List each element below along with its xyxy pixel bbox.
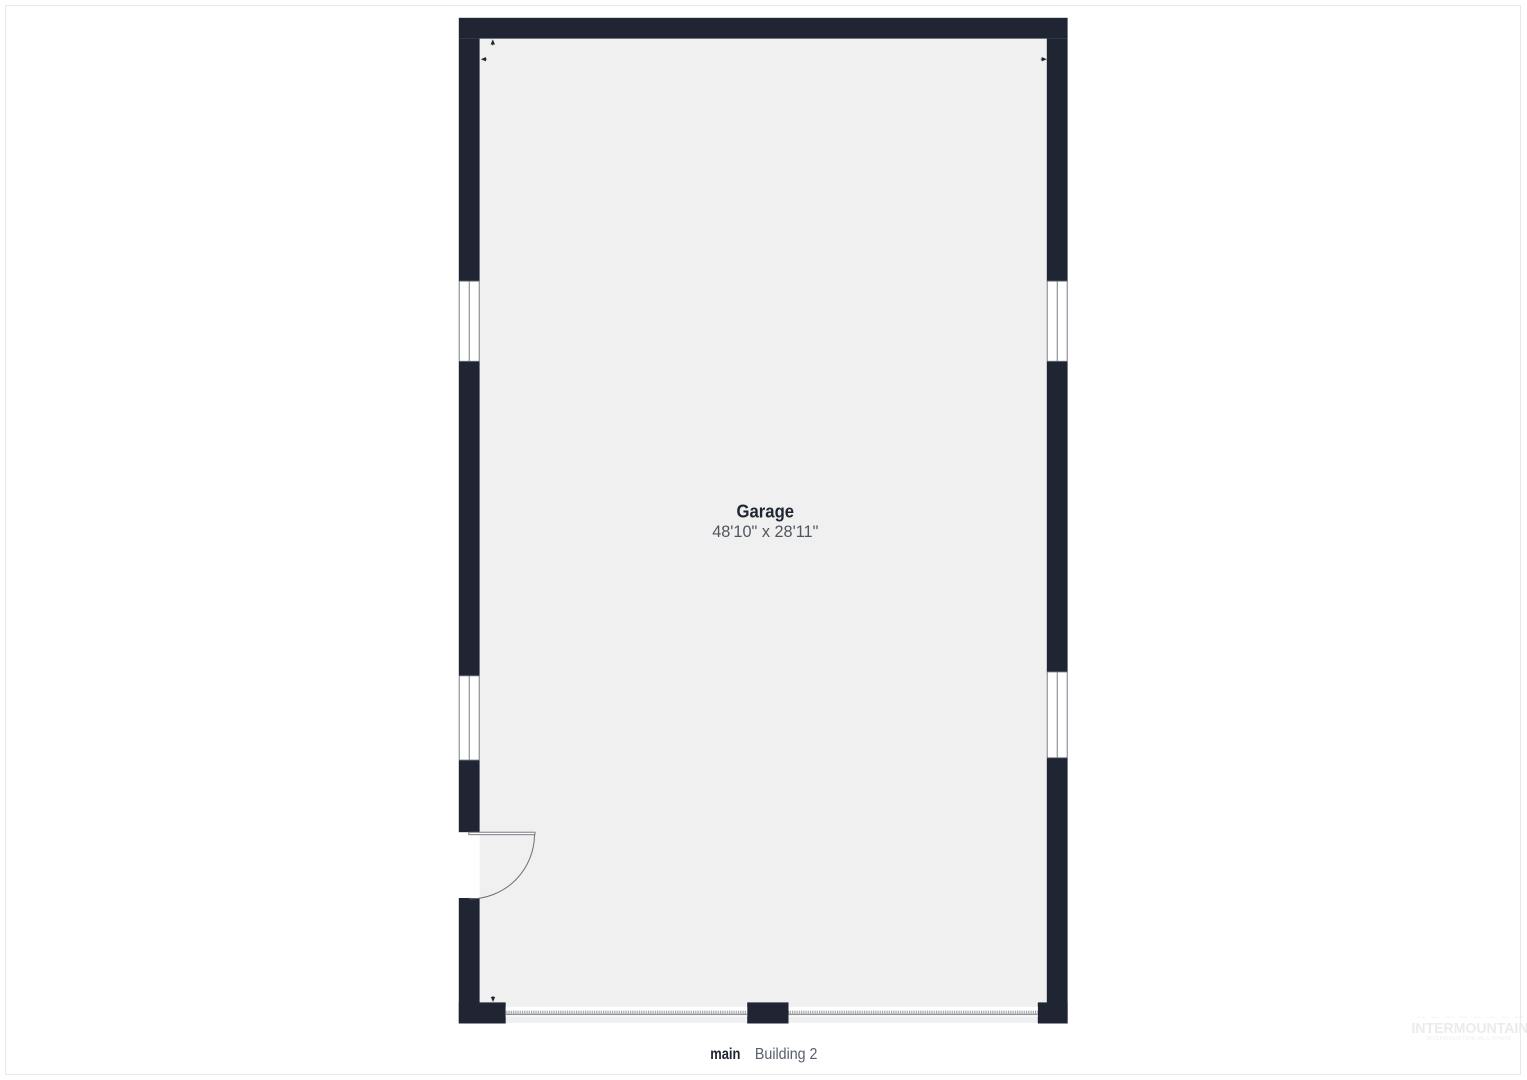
svg-text:Garage: Garage [737, 501, 795, 521]
svg-text:INTERMOUNTAIN MLS IDAHO: INTERMOUNTAIN MLS IDAHO [1426, 1036, 1512, 1042]
svg-text:main: main [710, 1046, 740, 1063]
svg-text:48'10" x 28'11": 48'10" x 28'11" [712, 522, 818, 541]
svg-text:Building 2: Building 2 [755, 1046, 818, 1063]
svg-text:INTERMOUNTAIN: INTERMOUNTAIN [1412, 1021, 1527, 1037]
